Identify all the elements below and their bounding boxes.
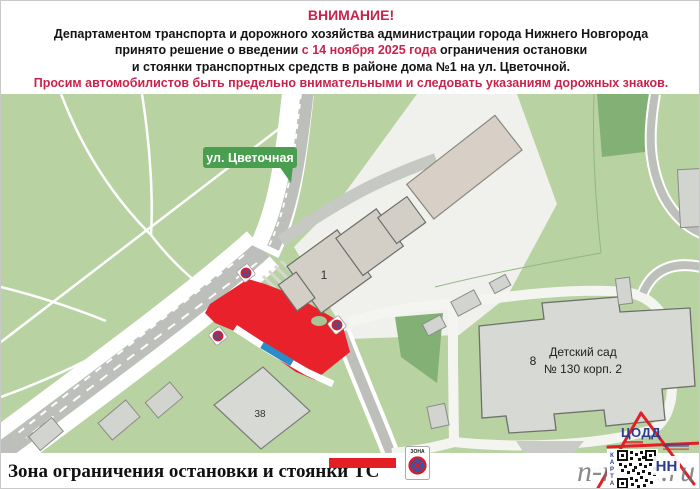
building-8-label: 8 (530, 354, 537, 368)
legend-label: Зона ограничения остановки и стоянки ТС (8, 461, 379, 483)
qr-code: К А Р Т А (607, 449, 658, 489)
zone-sign-text: ЗОНА (410, 449, 425, 455)
legend-zone-color-swatch (329, 458, 396, 468)
qr-letter: А (610, 481, 615, 487)
qr-letter: А (610, 460, 615, 466)
line2-date-highlight: с 14 ноября 2025 года (302, 43, 437, 57)
building-1-label: 1 (321, 268, 328, 282)
branding-block: ЦОДД n-n 52.ru К А Р Т А (571, 401, 700, 489)
street-label-text: ул. Цветочная (206, 151, 293, 165)
qr-letter: Р (610, 467, 614, 473)
courtyard-green (311, 316, 327, 326)
header-line-1: Департаментом транспорта и дорожного хоз… (1, 26, 700, 43)
qr-letter: Т (610, 474, 614, 480)
nn-mark: НН (653, 456, 680, 475)
header-warning-line: Просим автомобилистов быть предельно вни… (1, 75, 700, 92)
building-38-label: 38 (254, 409, 266, 420)
line2-post: ограничения остановки (437, 43, 588, 57)
attention-title: ВНИМАНИЕ! (1, 7, 700, 24)
header-line-2: принято решение о введении с 14 ноября 2… (1, 42, 700, 59)
line2-pre: принято решение о введении (115, 43, 302, 57)
qr-letter: К (610, 453, 614, 459)
hedge-top (597, 94, 653, 157)
header-announcement: ВНИМАНИЕ! Департаментом транспорта и дор… (1, 1, 700, 94)
announcement-page: 1 8 Детский сад № 130 корп. 2 38 (0, 0, 700, 489)
header-line-3: и стоянки транспортных средств в районе … (1, 59, 700, 76)
kindergarten-name: Детский сад (549, 345, 616, 359)
kindergarten-number: № 130 корп. 2 (544, 362, 622, 376)
codd-logo-text: ЦОДД (621, 425, 661, 440)
zone-sign-icon: ЗОНА (405, 446, 430, 480)
nn-text: НН (656, 458, 678, 475)
